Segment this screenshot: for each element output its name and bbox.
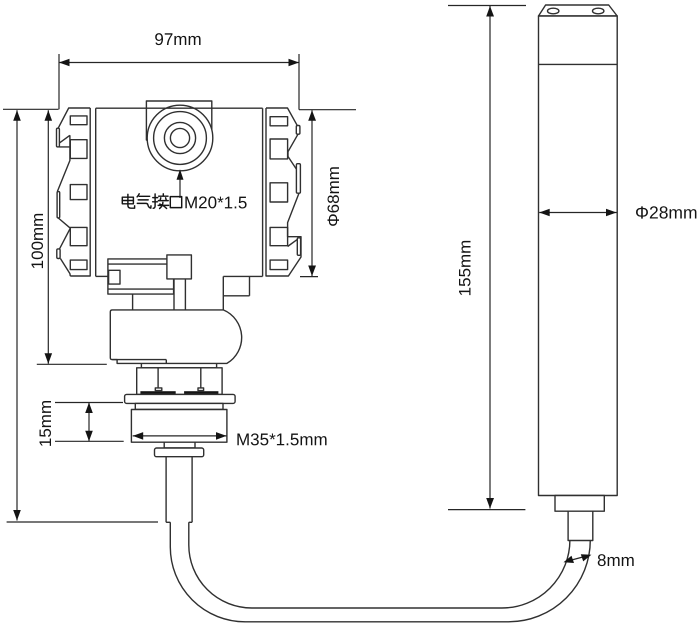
svg-text:100mm: 100mm: [28, 213, 47, 270]
svg-text:Φ68mm: Φ68mm: [324, 166, 343, 227]
svg-text:15mm: 15mm: [36, 400, 55, 447]
svg-text:Φ28mm: Φ28mm: [635, 203, 698, 223]
svg-text:M20*1.5: M20*1.5: [184, 193, 247, 212]
svg-text:M35*1.5mm: M35*1.5mm: [236, 430, 328, 449]
svg-text:155mm: 155mm: [455, 240, 474, 297]
svg-text:8mm: 8mm: [597, 551, 635, 570]
svg-text:97mm: 97mm: [154, 30, 201, 49]
